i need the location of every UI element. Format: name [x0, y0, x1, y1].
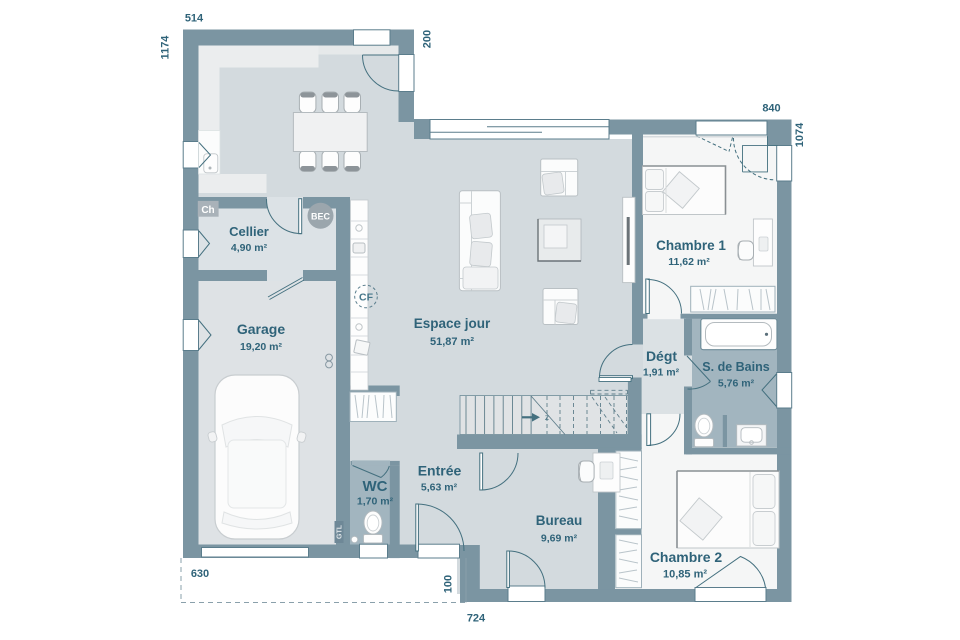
svg-text:z: z	[545, 412, 549, 422]
svg-text:1,70 m²: 1,70 m²	[357, 496, 394, 508]
svg-text:Chambre 2: Chambre 2	[650, 549, 723, 565]
svg-text:S. de Bains: S. de Bains	[702, 360, 769, 374]
svg-text:Chambre 1: Chambre 1	[656, 238, 726, 253]
svg-text:1,91 m²: 1,91 m²	[643, 367, 680, 379]
svg-text:200: 200	[422, 30, 434, 48]
svg-text:724: 724	[467, 613, 486, 625]
svg-text:WC: WC	[363, 478, 388, 495]
svg-text:BEC: BEC	[311, 212, 331, 222]
svg-text:9,69 m²: 9,69 m²	[541, 533, 578, 545]
svg-text:51,87 m²: 51,87 m²	[430, 336, 474, 348]
svg-text:11,62 m²: 11,62 m²	[668, 256, 710, 268]
svg-text:19,20 m²: 19,20 m²	[240, 341, 283, 353]
svg-text:1174: 1174	[160, 35, 172, 60]
svg-text:514: 514	[185, 13, 204, 25]
svg-text:840: 840	[762, 103, 780, 115]
svg-text:5,76 m²: 5,76 m²	[718, 378, 755, 390]
svg-text:CF: CF	[359, 292, 374, 304]
svg-text:10,85 m²: 10,85 m²	[663, 569, 707, 581]
svg-text:GTL: GTL	[337, 524, 344, 539]
svg-text:Ch: Ch	[201, 205, 214, 216]
svg-text:630: 630	[191, 568, 209, 580]
svg-text:1074: 1074	[794, 122, 806, 147]
svg-text:Garage: Garage	[237, 321, 285, 337]
svg-text:Dégt: Dégt	[646, 348, 677, 364]
svg-text:4,90 m²: 4,90 m²	[231, 242, 268, 254]
svg-text:5,63 m²: 5,63 m²	[421, 482, 458, 494]
svg-text:100: 100	[443, 575, 455, 593]
svg-text:Cellier: Cellier	[229, 224, 269, 239]
svg-text:Espace jour: Espace jour	[414, 316, 491, 331]
svg-text:Bureau: Bureau	[536, 513, 583, 528]
svg-text:Entrée: Entrée	[418, 463, 462, 479]
